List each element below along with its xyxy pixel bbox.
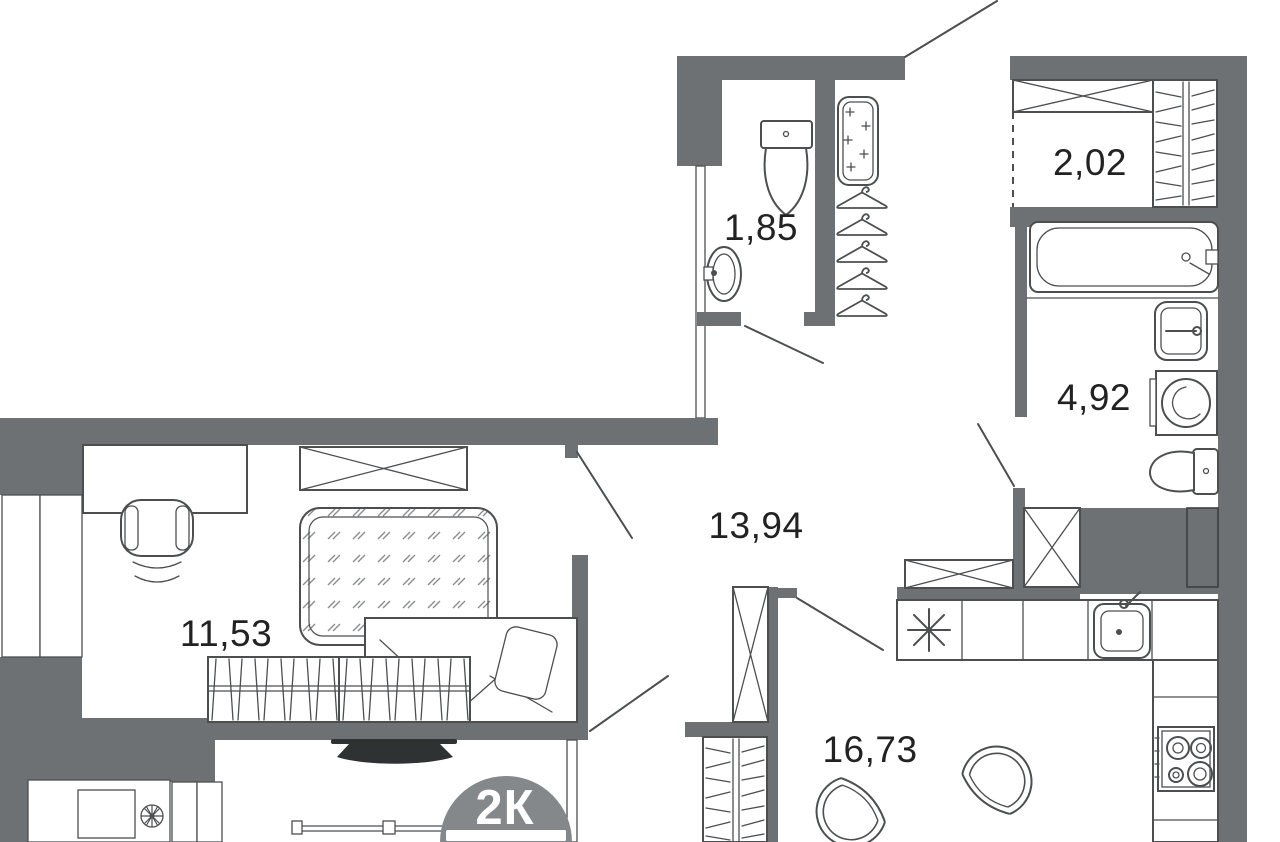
equipment-box	[78, 790, 135, 838]
wardrobe-icon	[733, 587, 768, 722]
coat-hanger-icon	[837, 295, 887, 316]
door-swing-icon-bedroom	[577, 452, 632, 538]
fan-icon	[141, 805, 163, 827]
coat-hangers	[837, 187, 887, 316]
wall-segment	[1010, 56, 1247, 80]
balcony	[28, 780, 443, 842]
wall-top-bedroom	[0, 418, 718, 445]
room-area-label: 11,53	[180, 613, 272, 654]
room-kitchen-living	[703, 592, 1218, 842]
wall-segment	[1015, 227, 1027, 417]
shelving-icon	[1153, 80, 1217, 207]
door-swing-icon-kitchen	[797, 598, 883, 650]
wardrobe-icon	[1013, 80, 1153, 112]
room-bathroom	[1027, 222, 1218, 494]
wash-basin-icon	[1155, 302, 1207, 360]
duct-shaft-icon	[1080, 508, 1218, 594]
room-area-label: 16,73	[822, 729, 917, 770]
wall-segment	[815, 78, 835, 325]
coat-hanger-icon	[837, 214, 887, 235]
floor-plan-canvas: 11,53 13,94 1,85 2,02 4,92 16,73 2К	[0, 0, 1280, 842]
wardrobe-icon	[300, 447, 467, 490]
wall-stub	[685, 722, 778, 737]
wall-bedroom-bottom	[215, 722, 588, 740]
room-area-label: 1,85	[724, 207, 798, 248]
toilet-bowl	[765, 148, 808, 215]
tv-icon	[331, 739, 457, 764]
desk-chair-icon	[121, 500, 193, 582]
wall-segment	[677, 56, 722, 166]
room-bedroom	[83, 445, 577, 764]
balcony-rail-icon	[292, 821, 443, 834]
outer-wall-right	[1218, 56, 1247, 842]
radiator-icon	[208, 657, 470, 722]
thin-wall	[696, 166, 705, 418]
mirror-icon	[838, 97, 878, 185]
coat-hanger-icon	[837, 268, 887, 289]
wardrobe-icon	[905, 560, 1013, 588]
floor-plan-drawing: 11,53 13,94 1,85 2,02 4,92 16,73 2К	[0, 0, 1280, 842]
door-swing-icon-entry	[905, 1, 997, 57]
window-icon	[2, 495, 40, 657]
wall-segment	[768, 587, 778, 842]
fridge-snowflake-icon	[908, 609, 950, 651]
wall-stub	[697, 312, 741, 326]
wardrobe-icon	[1024, 508, 1080, 587]
room-area-label: 2,02	[1053, 142, 1127, 183]
washing-machine-icon	[1150, 371, 1217, 435]
entry-hall	[837, 97, 887, 316]
door-swing-icon-bathroom	[978, 424, 1014, 486]
door-jamb	[565, 445, 578, 458]
window-icon	[197, 782, 222, 842]
door-swing-icon-wc	[745, 326, 823, 363]
toilet-icon	[1150, 449, 1218, 494]
window-sill	[40, 495, 82, 657]
room-area-label: 13,94	[708, 505, 803, 546]
room-area-label: 4,92	[1057, 377, 1131, 418]
coat-hanger-icon	[837, 187, 887, 208]
armchair-icon	[802, 770, 893, 842]
badge-underline	[446, 830, 566, 841]
apartment-type-badge: 2К	[440, 776, 572, 842]
coat-hanger-icon	[837, 241, 887, 262]
bathtub-icon	[1030, 222, 1218, 292]
outer-wall-left	[0, 445, 82, 495]
radiator-icon	[703, 737, 767, 842]
wall-stub	[804, 312, 835, 326]
stove-icon	[1155, 727, 1214, 791]
basin-drain	[711, 270, 717, 276]
toilet-icon	[761, 121, 812, 148]
kitchen-counter	[897, 600, 1218, 842]
window-icon	[172, 782, 197, 842]
wall-segment	[28, 718, 215, 782]
armchair-icon	[954, 732, 1045, 822]
badge-label: 2К	[475, 781, 534, 835]
door-swing-icon-balcony	[590, 676, 668, 731]
